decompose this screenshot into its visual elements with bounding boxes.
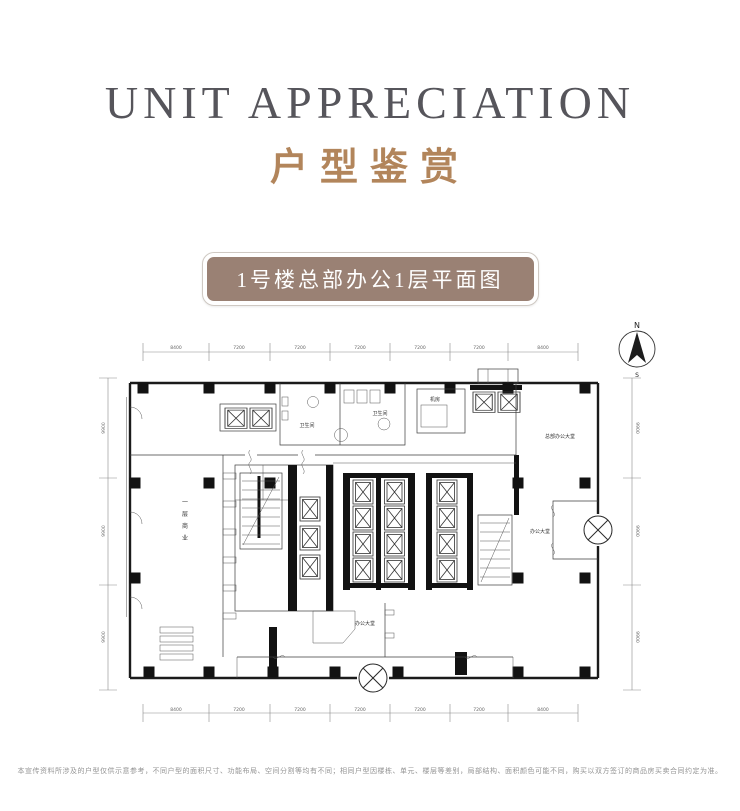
dim-top-7: 8400 xyxy=(537,345,549,351)
dimension-left: 9900 9900 9900 xyxy=(99,378,117,690)
elevator-core-b xyxy=(426,473,473,590)
escalator xyxy=(160,627,193,660)
elevator-pair-top-left xyxy=(220,404,276,431)
label-lobby-right: 办公大堂 xyxy=(530,528,550,535)
compass-north-label: N xyxy=(634,321,640,330)
plan-badge: 1号楼总部办公1层平面图 xyxy=(205,255,536,303)
compass: N S xyxy=(619,321,655,379)
page-title-chinese: 户型鉴赏 xyxy=(0,136,740,191)
stairwell-left-block xyxy=(235,465,333,611)
dim-right-1: 9900 xyxy=(634,422,640,434)
outer-walls xyxy=(127,369,599,678)
label-retail-char-3: 商 xyxy=(182,522,188,530)
dim-top-6: 7200 xyxy=(473,345,485,351)
dim-right-3: 9900 xyxy=(634,631,640,643)
dimension-right: 9900 9900 9900 xyxy=(623,378,641,690)
dim-bottom-6: 7200 xyxy=(473,707,485,713)
dimension-bottom: 8400 7200 7200 7200 7200 7200 8400 xyxy=(143,704,578,722)
dim-top-5: 7200 xyxy=(414,345,426,351)
label-lobby-main: 总部办公大堂 xyxy=(545,433,575,440)
dim-left-3: 9900 xyxy=(101,631,107,643)
compass-south-label: S xyxy=(635,372,639,379)
label-toilet-left: 卫生间 xyxy=(299,422,314,429)
dimension-top: 8400 7200 7200 7200 7200 7200 8400 xyxy=(143,343,578,361)
equipment-room: 机房 xyxy=(417,389,465,433)
label-retail-char-1: 一 xyxy=(182,499,188,506)
stairwell-right xyxy=(478,515,512,585)
dim-bottom-7: 8400 xyxy=(537,707,549,713)
page-title-english: UNIT APPRECIATION xyxy=(0,76,740,129)
revolving-door-bottom xyxy=(359,664,387,692)
label-retail-char-2: 层 xyxy=(182,511,188,518)
service-elevators-top xyxy=(470,385,522,412)
dim-top-3: 7200 xyxy=(294,345,306,351)
dim-right-2: 9900 xyxy=(634,525,640,537)
elevator-core-a xyxy=(343,473,415,590)
dim-bottom-3: 7200 xyxy=(294,707,306,713)
dim-bottom-2: 7200 xyxy=(233,707,245,713)
plan-badge-border: 1号楼总部办公1层平面图 xyxy=(202,252,539,306)
dim-top-2: 7200 xyxy=(233,345,245,351)
revolving-door-right xyxy=(584,516,612,544)
vestibule-right xyxy=(552,501,598,559)
label-toilet-right: 卫生间 xyxy=(372,410,387,417)
label-equipment-room: 机房 xyxy=(430,396,440,403)
plan-badge-container: 1号楼总部办公1层平面图 xyxy=(0,252,740,306)
dim-bottom-1: 8400 xyxy=(170,707,182,713)
label-retail-char-4: 业 xyxy=(182,534,188,542)
interior-partitions xyxy=(130,383,516,657)
dim-top-1: 8400 xyxy=(170,345,182,351)
disclaimer-text: 本宣传资料所涉及的户型仅供示意参考，不同户型的面积尺寸、功能布局、空间分割等均有… xyxy=(0,766,740,776)
dim-top-4: 7200 xyxy=(354,345,366,351)
dim-bottom-4: 7200 xyxy=(354,707,366,713)
plan-badge-label: 1号楼总部办公1层平面图 xyxy=(237,268,504,292)
dim-left-1: 9900 xyxy=(101,422,107,434)
label-lobby-bottom: 办公大堂 xyxy=(355,620,375,627)
dim-left-2: 9900 xyxy=(101,525,107,537)
compass-needle-icon xyxy=(628,332,646,363)
dim-bottom-5: 7200 xyxy=(414,707,426,713)
floor-plan: 8400 7200 7200 7200 7200 7200 8400 8400 … xyxy=(85,305,665,745)
